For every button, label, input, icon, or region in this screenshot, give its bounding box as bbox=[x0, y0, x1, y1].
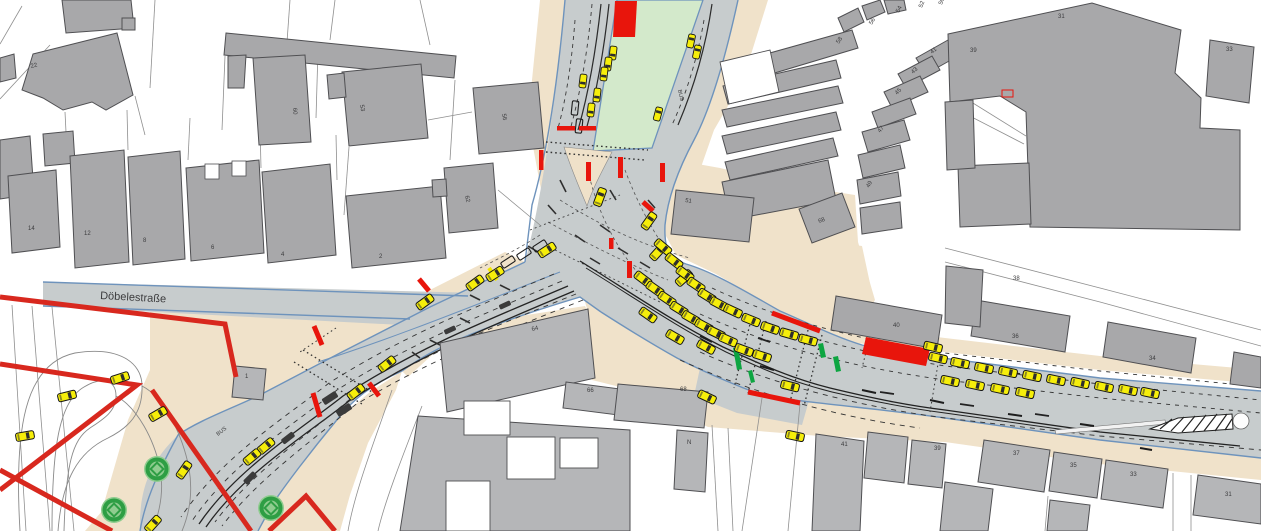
svg-text:37: 37 bbox=[1013, 451, 1020, 457]
svg-text:40: 40 bbox=[893, 323, 900, 329]
svg-text:N: N bbox=[687, 440, 691, 446]
svg-text:14: 14 bbox=[28, 226, 35, 232]
svg-text:39: 39 bbox=[970, 48, 977, 54]
svg-text:33: 33 bbox=[1226, 47, 1233, 53]
svg-text:68: 68 bbox=[680, 387, 687, 393]
svg-text:31: 31 bbox=[1225, 492, 1232, 498]
svg-text:34: 34 bbox=[1149, 356, 1156, 362]
svg-text:33: 33 bbox=[1130, 472, 1137, 478]
svg-text:38: 38 bbox=[1013, 276, 1020, 282]
svg-text:12: 12 bbox=[84, 231, 91, 237]
svg-text:35: 35 bbox=[1070, 463, 1077, 469]
svg-text:41: 41 bbox=[841, 442, 848, 448]
svg-text:66: 66 bbox=[587, 388, 594, 394]
svg-text:60: 60 bbox=[291, 108, 298, 116]
svg-text:36: 36 bbox=[1012, 334, 1019, 340]
svg-text:39: 39 bbox=[934, 446, 941, 452]
svg-text:31: 31 bbox=[1058, 14, 1065, 20]
